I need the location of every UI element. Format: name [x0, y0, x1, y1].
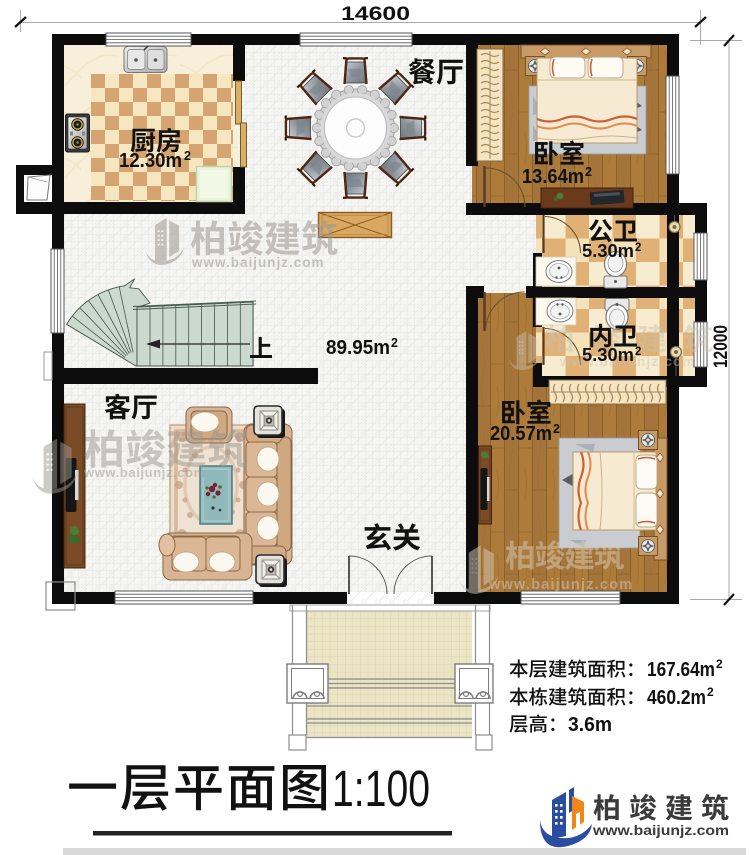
- svg-text:www.baijunjz.com: www.baijunjz.com: [592, 822, 729, 838]
- svg-text:2: 2: [707, 685, 714, 699]
- svg-text:2: 2: [716, 657, 723, 671]
- svg-text:460.2m: 460.2m: [647, 687, 706, 709]
- svg-text:2: 2: [184, 149, 191, 163]
- svg-text:2: 2: [585, 165, 592, 179]
- svg-text:13.64m: 13.64m: [522, 166, 584, 188]
- svg-text:167.64m: 167.64m: [647, 659, 715, 681]
- svg-text:14600: 14600: [341, 4, 410, 25]
- svg-text:www.baijunjz.com: www.baijunjz.com: [488, 577, 633, 593]
- svg-text:5.30m: 5.30m: [582, 241, 634, 261]
- svg-text:12000: 12000: [711, 325, 732, 368]
- svg-text:2: 2: [635, 242, 641, 254]
- svg-text:1:100: 1:100: [332, 760, 430, 817]
- svg-text:www.baijunjz.com: www.baijunjz.com: [191, 255, 325, 270]
- svg-text:89.95m: 89.95m: [326, 337, 390, 359]
- svg-text:2: 2: [635, 346, 641, 358]
- svg-text:www.baijunjz.com: www.baijunjz.com: [83, 465, 206, 480]
- svg-text:2: 2: [553, 422, 560, 436]
- svg-text:3.6m: 3.6m: [568, 714, 612, 736]
- svg-text:5.30m: 5.30m: [582, 345, 634, 365]
- svg-text:20.57m: 20.57m: [490, 423, 552, 445]
- svg-text:12.30m: 12.30m: [119, 150, 182, 172]
- svg-text:2: 2: [391, 336, 398, 350]
